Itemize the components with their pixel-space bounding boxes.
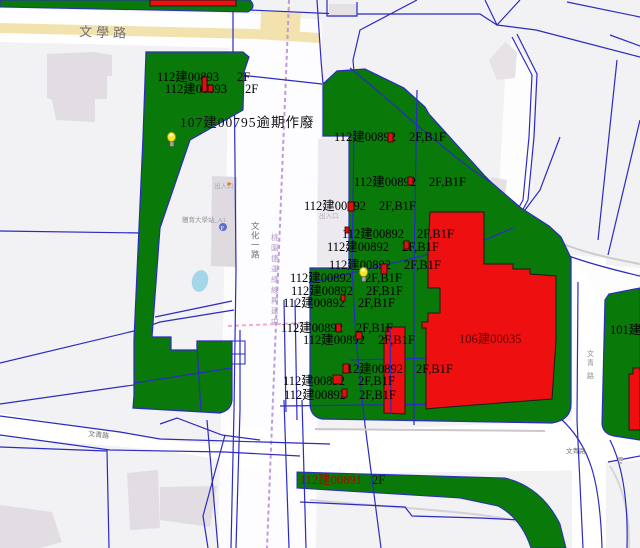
svg-text:體育大學站_A1: 體育大學站_A1 (182, 215, 226, 224)
svg-text:桃園捷運綠線興建中: 桃園捷運綠線興建中 (271, 232, 279, 326)
svg-text:112建008922F,B1F: 112建008922F,B1F (284, 388, 396, 402)
svg-text:出入口: 出入口 (214, 181, 234, 190)
svg-text:101建0: 101建0 (610, 323, 640, 337)
svg-text:106建00035: 106建00035 (459, 332, 522, 346)
svg-text:文化一路: 文化一路 (251, 221, 260, 260)
svg-text:文青路: 文青路 (587, 349, 594, 380)
svg-text:文學路: 文學路 (79, 24, 131, 41)
svg-text:文青路: 文青路 (566, 446, 586, 455)
svg-text:112建008922F,B1F: 112建008922F,B1F (342, 227, 454, 241)
svg-text:112建008922F,B1F: 112建008922F,B1F (283, 296, 395, 310)
svg-text:112建008912F: 112建008912F (300, 473, 385, 487)
svg-text:112建008922F,B1F: 112建008922F,B1F (327, 240, 439, 254)
svg-text:112建008922F,B1F: 112建008922F,B1F (304, 199, 416, 213)
svg-text:107建00795逾期作廢: 107建00795逾期作廢 (180, 115, 315, 130)
